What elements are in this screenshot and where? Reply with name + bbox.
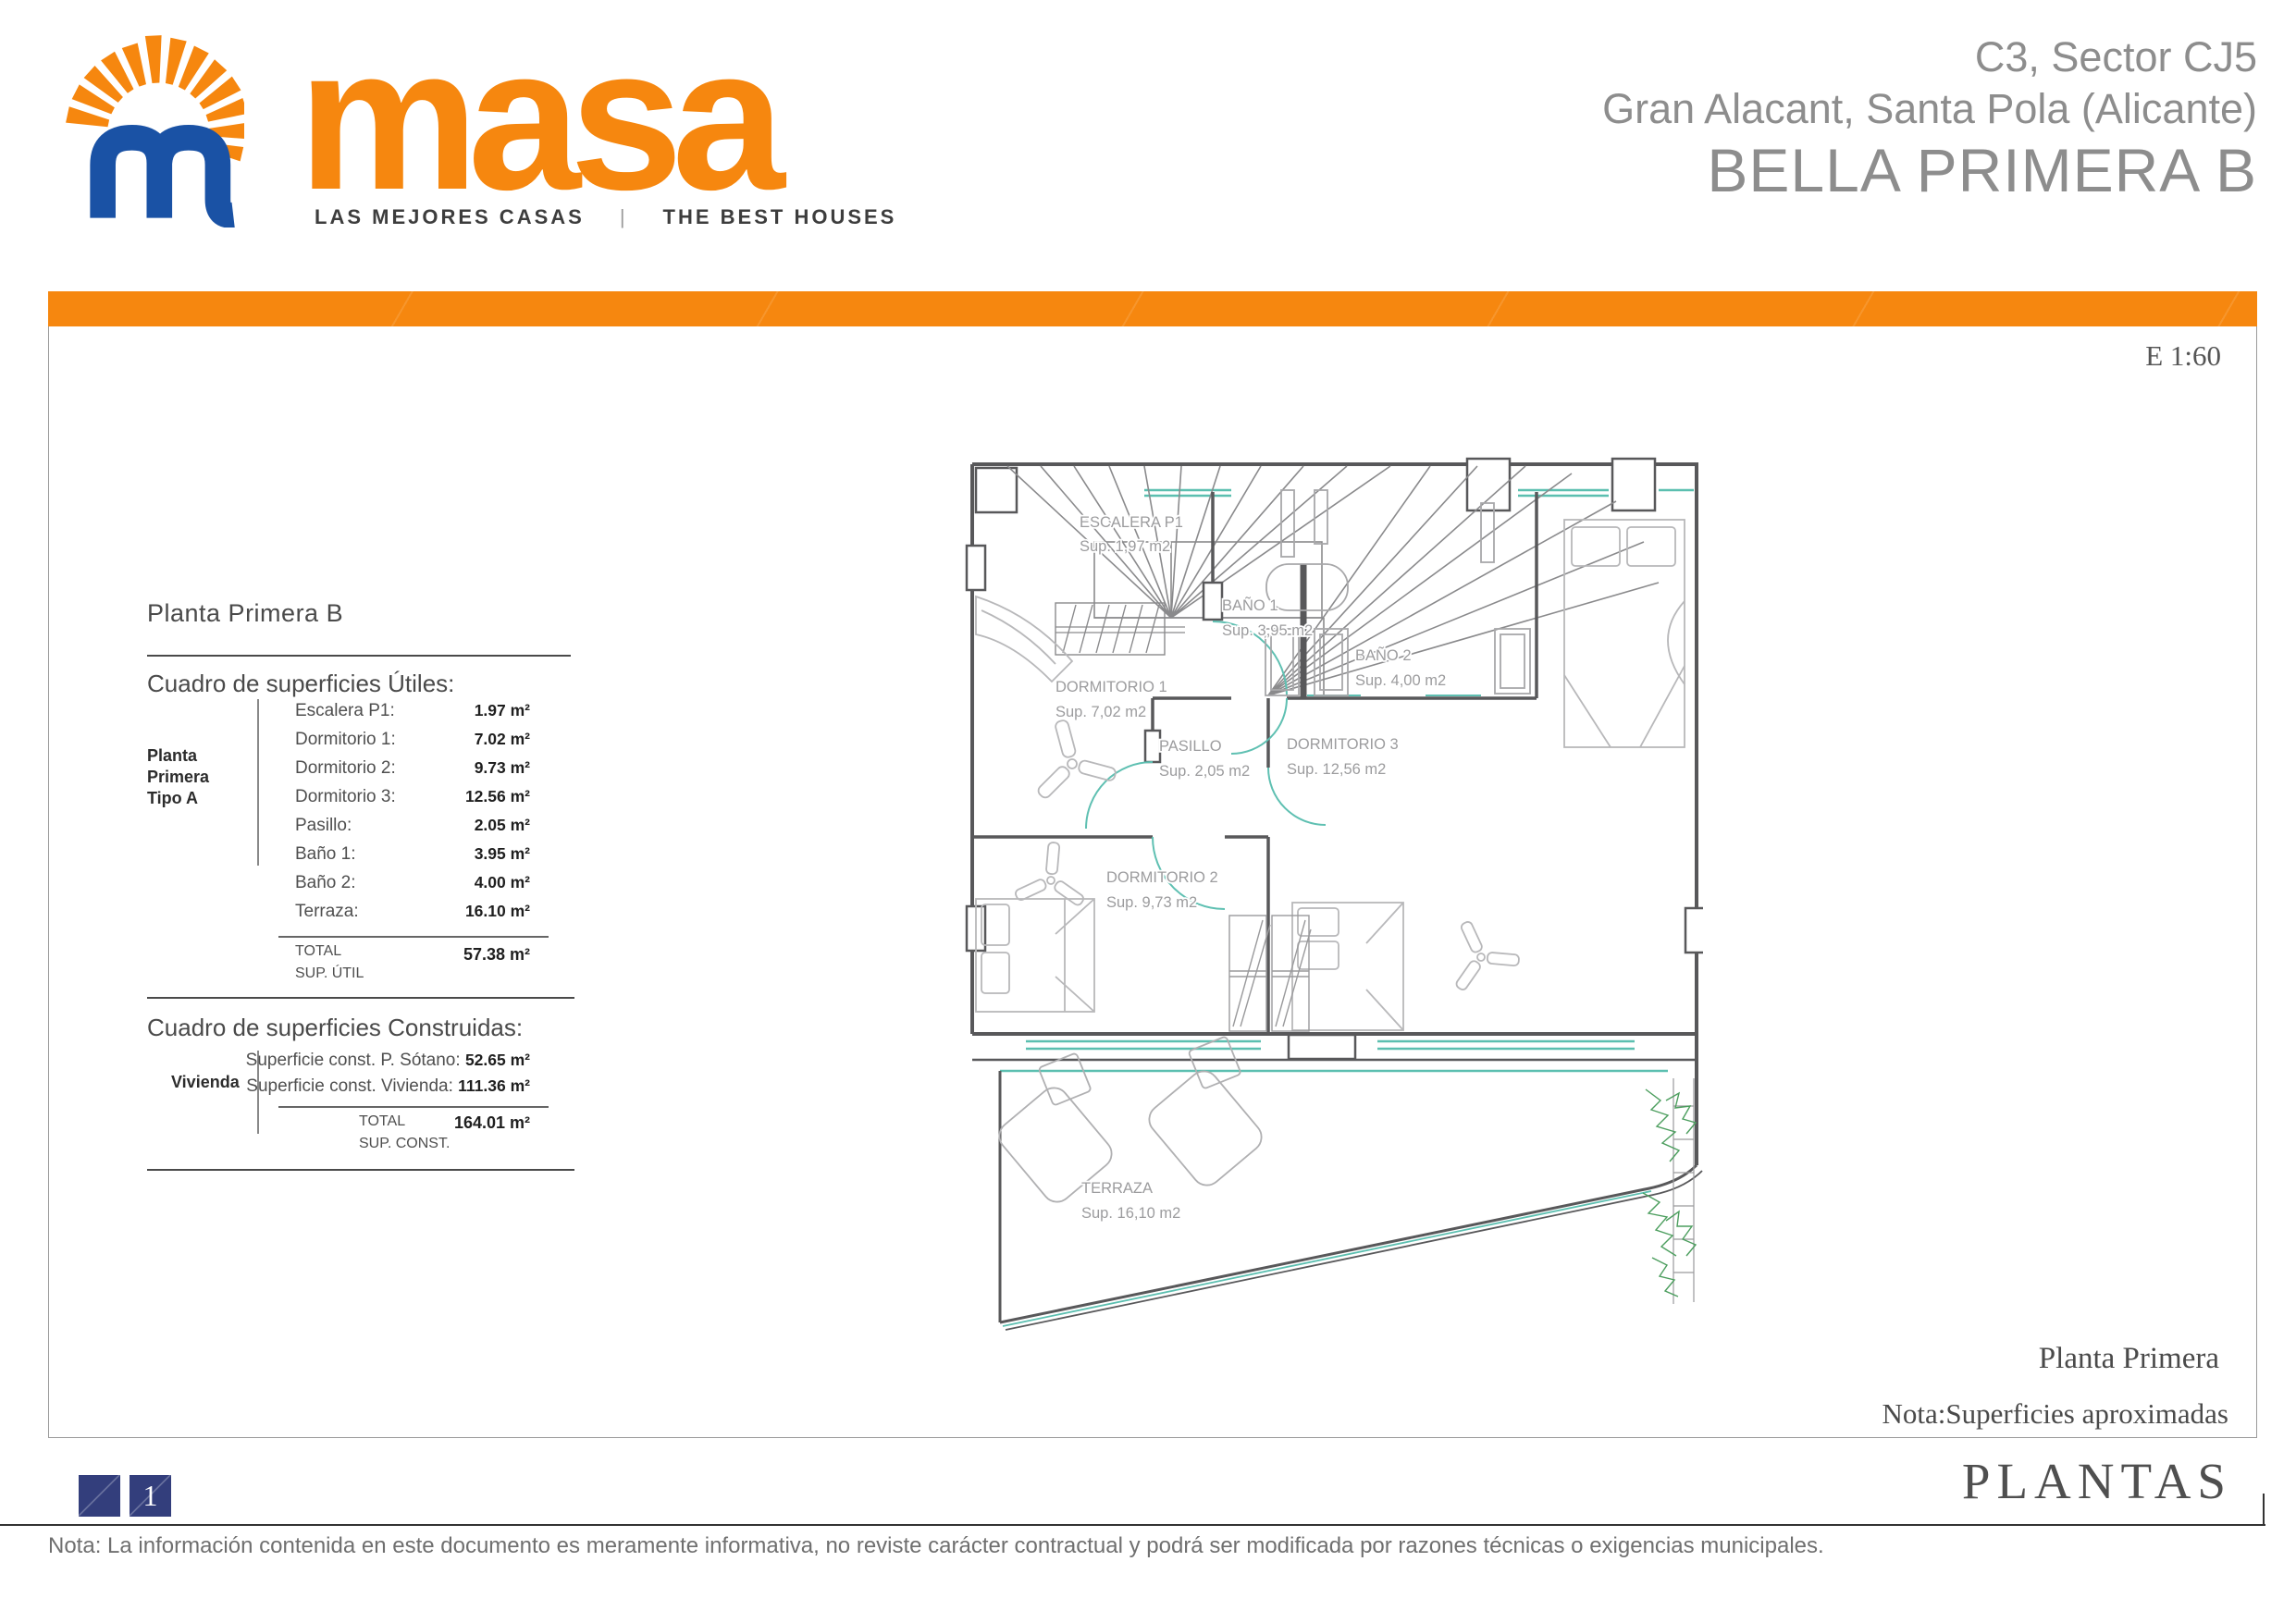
row-value: 9.73 m² bbox=[475, 758, 530, 778]
row-label: Dormitorio 1: bbox=[295, 730, 396, 750]
total-label: TOTAL bbox=[359, 1113, 405, 1130]
plan-sheet-page: masa LAS MEJORES CASAS | THE BEST HOUSES… bbox=[0, 0, 2296, 1623]
room-area: Sup. 12,56 m2 bbox=[1287, 761, 1386, 778]
table-row: Baño 2:4.00 m² bbox=[295, 873, 530, 899]
project-model-name: BELLA PRIMERA B bbox=[1602, 135, 2257, 205]
row-value: 7.02 m² bbox=[475, 730, 530, 749]
group-line: Tipo A bbox=[147, 788, 253, 809]
table-row: Superficie const. Vivienda: 111.36 m² bbox=[246, 1076, 530, 1097]
useful-surfaces-heading: Cuadro de superficies Útiles: bbox=[147, 670, 454, 698]
table-row: Escalera P1:1.97 m² bbox=[295, 701, 530, 727]
brand-tagline: LAS MEJORES CASAS | THE BEST HOUSES bbox=[315, 205, 896, 229]
table-row: Superficie const. P. Sótano: 52.65 m² bbox=[246, 1051, 530, 1071]
project-location: Gran Alacant, Santa Pola (Alicante) bbox=[1602, 83, 2257, 135]
ceiling-fan-icon bbox=[1014, 842, 1085, 907]
row-value: 1.97 m² bbox=[475, 701, 530, 720]
terrace-walls bbox=[1000, 1071, 1702, 1330]
accent-bar bbox=[48, 291, 2257, 326]
row-value: 111.36 m² bbox=[458, 1076, 530, 1095]
brand-wordmark: masa bbox=[298, 17, 774, 220]
room-label: DORMITORIO 2 bbox=[1106, 869, 1218, 886]
useful-group-label: Planta Primera Tipo A bbox=[147, 745, 253, 809]
room-area: Sup. 9,73 m2 bbox=[1106, 894, 1197, 911]
row-label: Dormitorio 2: bbox=[295, 758, 396, 779]
surfaces-panel: Planta Primera B Cuadro de superficies Ú… bbox=[147, 599, 582, 1117]
row-value: 4.00 m² bbox=[475, 873, 530, 892]
staircase bbox=[1007, 466, 1659, 695]
room-area: Sup. 1,97 m2 bbox=[1080, 538, 1170, 555]
floor-plan-drawing: ESCALERA P1 Sup. 1,97 m2 BAÑO 1 Sup. 3,9… bbox=[963, 453, 1703, 1369]
group-line: Planta Primera bbox=[147, 745, 253, 788]
row-label: Escalera P1: bbox=[295, 701, 395, 721]
tagline-es: LAS MEJORES CASAS bbox=[315, 205, 585, 229]
total-sublabel: SUP. ÚTIL bbox=[295, 965, 364, 982]
room-area: Sup. 4,00 m2 bbox=[1355, 672, 1446, 689]
divider bbox=[257, 699, 259, 866]
section-title: PLANTAS bbox=[1962, 1452, 2232, 1510]
plan-caption: Planta Primera bbox=[2039, 1342, 2219, 1376]
row-label: Pasillo: bbox=[295, 816, 352, 836]
divider bbox=[147, 997, 574, 999]
planter-strip bbox=[1673, 1078, 1694, 1304]
approx-surfaces-note: Nota:Superficies aproximadas bbox=[1882, 1397, 2228, 1431]
outer-walls bbox=[972, 464, 1697, 1165]
ceiling-fan-icon bbox=[1455, 920, 1520, 991]
table-row: Dormitorio 2:9.73 m² bbox=[295, 758, 530, 784]
divider bbox=[147, 1169, 574, 1171]
table-row: Dormitorio 1:7.02 m² bbox=[295, 730, 530, 756]
room-area: Sup. 7,02 m2 bbox=[1055, 704, 1146, 720]
panel-title: Planta Primera B bbox=[147, 599, 343, 628]
total-sublabel: SUP. CONST. bbox=[359, 1136, 450, 1152]
table-row: Pasillo:2.05 m² bbox=[295, 816, 530, 842]
room-label: BAÑO 2 bbox=[1355, 646, 1412, 664]
table-row: Baño 1:3.95 m² bbox=[295, 844, 530, 870]
project-header: C3, Sector CJ5 Gran Alacant, Santa Pola … bbox=[1602, 31, 2257, 205]
door-swing-arcs bbox=[1086, 621, 1481, 909]
room-label: DORMITORIO 1 bbox=[1055, 679, 1167, 695]
legal-note: Nota: La información contenida en este d… bbox=[48, 1533, 1824, 1559]
row-label: Superficie const. P. Sótano: bbox=[246, 1051, 461, 1070]
tagline-separator: | bbox=[620, 205, 628, 229]
row-value: 12.56 m² bbox=[465, 787, 530, 806]
room-label: ESCALERA P1 bbox=[1080, 514, 1183, 531]
total-value: 164.01 m² bbox=[454, 1113, 530, 1133]
window-glazing bbox=[1000, 490, 1694, 1071]
footer-rule-tick bbox=[2263, 1494, 2265, 1526]
row-value: 2.05 m² bbox=[475, 816, 530, 835]
divider bbox=[147, 655, 571, 657]
divider bbox=[278, 936, 549, 938]
room-area: Sup. 3,95 m2 bbox=[1222, 622, 1313, 639]
row-label: Superficie const. Vivienda: bbox=[246, 1076, 453, 1096]
row-label: Dormitorio 3: bbox=[295, 787, 396, 807]
built-group-label: Vivienda bbox=[171, 1073, 240, 1092]
built-surfaces-heading: Cuadro de superficies Construidas: bbox=[147, 1014, 523, 1042]
row-label: Baño 1: bbox=[295, 844, 356, 865]
ceiling-fan-icon bbox=[1036, 719, 1117, 800]
room-label: DORMITORIO 3 bbox=[1287, 736, 1399, 753]
room-area: Sup. 16,10 m2 bbox=[1081, 1205, 1180, 1222]
row-value: 3.95 m² bbox=[475, 844, 530, 864]
tagline-en: THE BEST HOUSES bbox=[663, 205, 897, 229]
divider bbox=[278, 1106, 549, 1108]
page-number: 1 bbox=[143, 1479, 158, 1513]
sheet-frame: E 1:60 Planta Primera B Cuadro de superf… bbox=[48, 326, 2257, 1438]
row-label: Terraza: bbox=[295, 902, 359, 922]
total-value: 57.38 m² bbox=[463, 945, 530, 965]
room-labels: ESCALERA P1 Sup. 1,97 m2 BAÑO 1 Sup. 3,9… bbox=[1055, 514, 1446, 1222]
floor-index-square-current: 1 bbox=[130, 1475, 171, 1517]
masa-logo-icon bbox=[48, 26, 244, 227]
room-label: PASILLO bbox=[1159, 738, 1222, 755]
row-label: Baño 2: bbox=[295, 873, 356, 893]
project-sector: C3, Sector CJ5 bbox=[1602, 31, 2257, 83]
room-label: BAÑO 1 bbox=[1222, 596, 1278, 614]
plants-icon bbox=[1643, 1089, 1696, 1297]
row-value: 16.10 m² bbox=[465, 902, 530, 921]
logo-m-icon bbox=[103, 138, 233, 218]
floor-index-square-empty bbox=[79, 1475, 120, 1517]
footer-rule bbox=[0, 1524, 2265, 1526]
scale-label: E 1:60 bbox=[2145, 339, 2221, 373]
table-row: Dormitorio 3:12.56 m² bbox=[295, 787, 530, 813]
row-value: 52.65 m² bbox=[465, 1051, 530, 1069]
interior-walls bbox=[972, 492, 1537, 1034]
table-row: Terraza:16.10 m² bbox=[295, 902, 530, 928]
room-label: TERRAZA bbox=[1081, 1180, 1153, 1197]
room-area: Sup. 2,05 m2 bbox=[1159, 763, 1250, 780]
total-label: TOTAL bbox=[295, 943, 341, 960]
